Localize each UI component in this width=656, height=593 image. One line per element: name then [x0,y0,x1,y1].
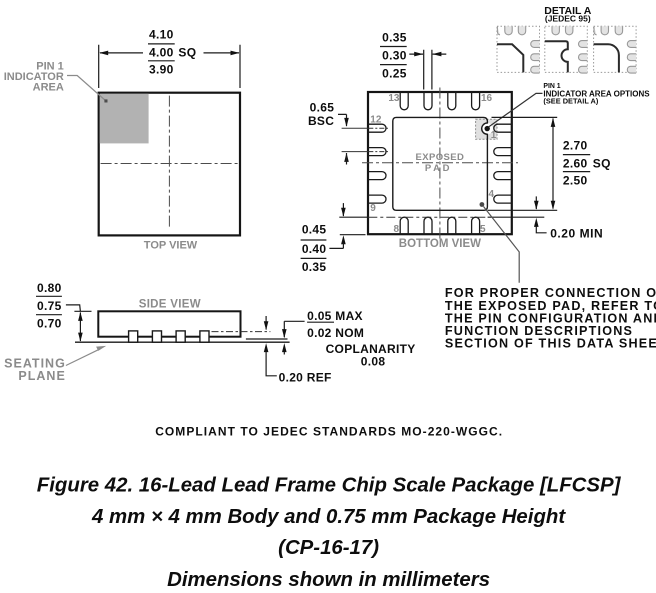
svg-text:BOTTOM VIEW: BOTTOM VIEW [399,238,481,250]
svg-text:Dimensions shown in millimeter: Dimensions shown in millimeters [167,569,490,591]
svg-text:SQ: SQ [593,157,611,171]
svg-text:4.00: 4.00 [149,46,174,60]
svg-text:13: 13 [388,93,400,104]
svg-text:2.60: 2.60 [563,157,588,171]
svg-text:0.75: 0.75 [37,299,62,313]
svg-text:0.05 MAX: 0.05 MAX [307,309,363,323]
svg-text:0.20 MIN: 0.20 MIN [550,227,603,241]
svg-text:EXPOSED: EXPOSED [416,152,465,163]
svg-text:3.90: 3.90 [149,63,174,77]
svg-text:AREA: AREA [33,81,64,93]
svg-text:4: 4 [489,189,495,200]
svg-text:(JEDEC 95): (JEDEC 95) [545,14,591,24]
svg-text:0.45: 0.45 [302,223,327,237]
svg-text:8: 8 [393,224,399,235]
svg-text:4 mm × 4 mm Body and 0.75 mm P: 4 mm × 4 mm Body and 0.75 mm Package Hei… [91,506,566,528]
svg-text:COMPLIANT TO JEDEC STANDARDS M: COMPLIANT TO JEDEC STANDARDS MO-220-WGGC… [155,424,503,438]
svg-text:BSC: BSC [308,114,334,128]
svg-text:0.70: 0.70 [37,316,62,330]
svg-text:TOP VIEW: TOP VIEW [144,240,198,252]
svg-text:(CP-16-17): (CP-16-17) [278,537,379,559]
svg-text:PLANE: PLANE [18,369,65,383]
svg-text:PAD: PAD [425,163,452,174]
svg-text:16: 16 [481,93,493,104]
svg-text:0.35: 0.35 [302,260,327,274]
svg-text:2.50: 2.50 [563,174,588,188]
svg-text:(SEE DETAIL A): (SEE DETAIL A) [543,97,598,106]
svg-text:0.20 REF: 0.20 REF [279,371,332,385]
svg-text:SIDE VIEW: SIDE VIEW [139,299,201,311]
svg-text:0.30: 0.30 [382,48,407,62]
svg-text:5: 5 [480,224,486,235]
svg-text:2.70: 2.70 [563,138,588,152]
svg-text:0.80: 0.80 [37,281,62,295]
svg-text:12: 12 [370,115,382,126]
svg-text:0.65: 0.65 [310,100,335,114]
svg-text:SQ: SQ [178,46,196,60]
svg-text:1: 1 [491,130,497,141]
svg-text:0.25: 0.25 [382,67,407,81]
svg-text:0.08: 0.08 [361,355,386,369]
svg-text:0.40: 0.40 [302,242,327,256]
svg-text:0.02 NOM: 0.02 NOM [307,326,364,340]
svg-text:4.10: 4.10 [149,27,174,41]
svg-text:0.35: 0.35 [382,30,407,44]
svg-text:9: 9 [370,203,376,214]
svg-text:SECTION OF THIS DATA SHEET.: SECTION OF THIS DATA SHEET. [445,337,656,351]
svg-text:Figure 42. 16-Lead Lead Frame: Figure 42. 16-Lead Lead Frame Chip Scale… [37,474,622,496]
